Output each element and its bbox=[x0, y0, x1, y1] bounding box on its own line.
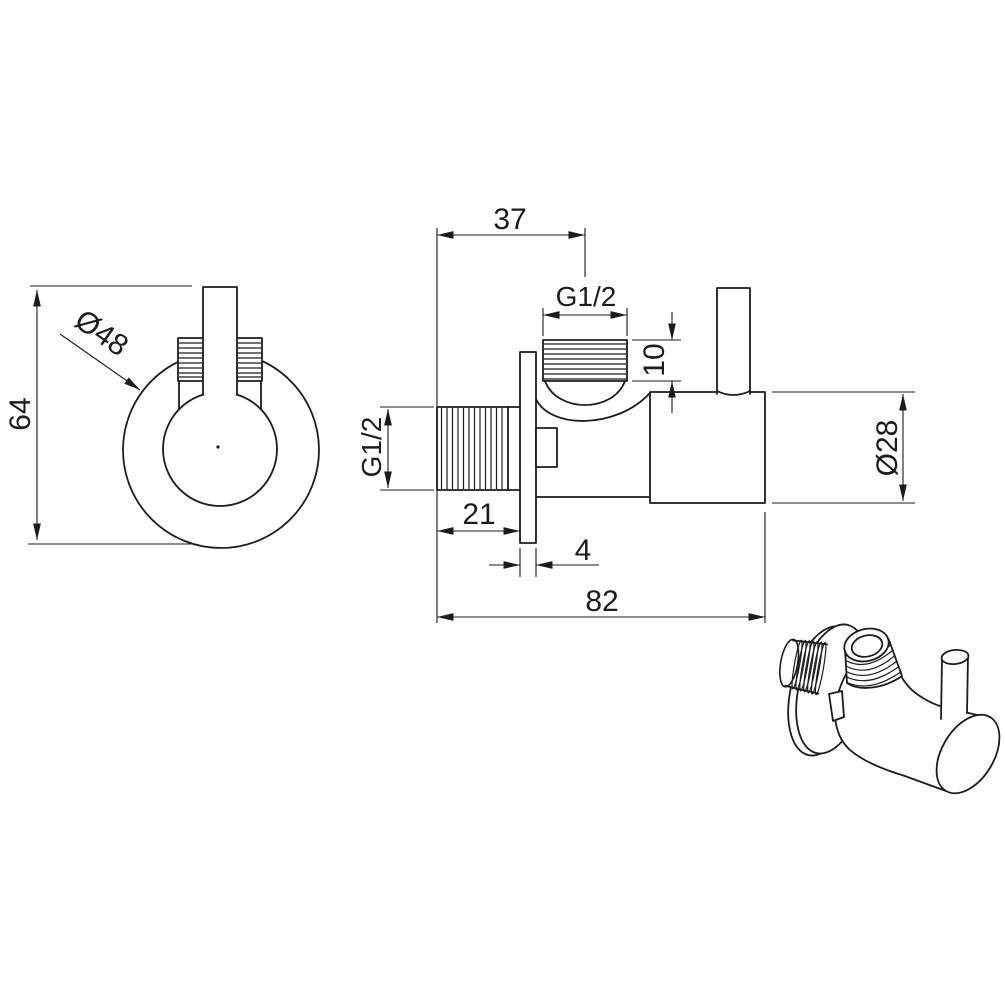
front-handle-stem bbox=[203, 287, 237, 395]
dim-37-label: 37 bbox=[493, 203, 526, 236]
side-top-port-thread bbox=[543, 340, 627, 381]
side-inlet-thread bbox=[437, 407, 508, 490]
dim-64-label: 64 bbox=[4, 397, 37, 430]
dim-21-label: 21 bbox=[462, 498, 495, 531]
dim-10-label: 10 bbox=[638, 343, 671, 376]
technical-drawing-canvas: 64 Ø48 37 G1/2 10 G1/2 bbox=[0, 0, 1005, 1005]
side-wall-plate bbox=[520, 352, 536, 543]
dim-28-label: Ø28 bbox=[871, 420, 904, 477]
dim-82-label: 82 bbox=[585, 585, 618, 618]
iso-stem-fill bbox=[941, 656, 968, 719]
dim-g12-top-label: G1/2 bbox=[556, 281, 617, 312]
angle-valve-technical-drawing: 64 Ø48 37 G1/2 10 G1/2 bbox=[0, 0, 1005, 1005]
side-handle-stem bbox=[717, 288, 750, 394]
front-inner-circle bbox=[163, 392, 277, 506]
side-plate-boss bbox=[536, 428, 557, 467]
dim-g12-left-label: G1/2 bbox=[356, 417, 387, 478]
side-valve-body bbox=[650, 392, 765, 503]
front-center-mark bbox=[216, 445, 219, 448]
dim-4-label: 4 bbox=[575, 534, 592, 567]
